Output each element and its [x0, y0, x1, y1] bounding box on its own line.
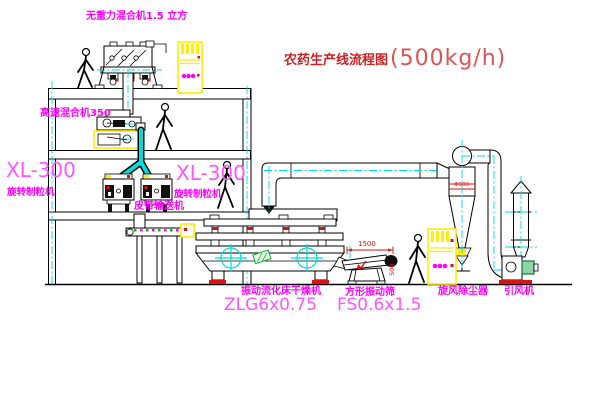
exhaust-duct-drawing — [262, 163, 446, 212]
label-granulator-right: 旋转制粒机 — [174, 190, 222, 200]
label-xl300-right: XL-300 — [176, 163, 246, 183]
label-gravity-mixer: 无重力混合机1.5 立方 — [86, 12, 187, 22]
label-high-speed-mixer: 高速混合机350 — [40, 109, 111, 119]
label-granulator-left: 旋转制粒机 — [7, 188, 55, 198]
granulator-left-drawing — [103, 174, 134, 212]
cyclone-marking: Φ600 — [454, 183, 469, 189]
label-dryer-model: ZLG6x0.75 — [224, 297, 317, 314]
dimension-1500: 1500 — [358, 241, 376, 248]
person-ground — [409, 235, 425, 284]
control-cabinet-right — [428, 229, 456, 284]
title-text: 农药生产线流程图 — [284, 49, 388, 68]
label-belt-conveyor: 皮带输送机 — [134, 202, 184, 212]
process-flow-diagram: 农药生产线流程图 (500kg/h) 无重力混合机1.5 立方 高速混合机350… — [0, 0, 600, 403]
person-on-roof — [78, 49, 93, 89]
label-xl300-left: XL-300 — [6, 160, 76, 180]
belt-conveyor-drawing — [126, 214, 194, 283]
dimension-500: 500 — [389, 264, 396, 276]
person-second-floor — [156, 104, 172, 151]
label-fan: 引风机 — [504, 287, 534, 297]
induced-draft-fan-drawing — [499, 256, 538, 284]
label-screen-model: FS0.6x1.5 — [337, 297, 421, 314]
diagram-title: 农药生产线流程图 (500kg/h) — [284, 46, 506, 71]
label-cyclone: 旋风除尘器 — [438, 287, 488, 297]
title-capacity: (500kg/h) — [390, 46, 506, 71]
control-cabinet-top — [178, 42, 202, 93]
